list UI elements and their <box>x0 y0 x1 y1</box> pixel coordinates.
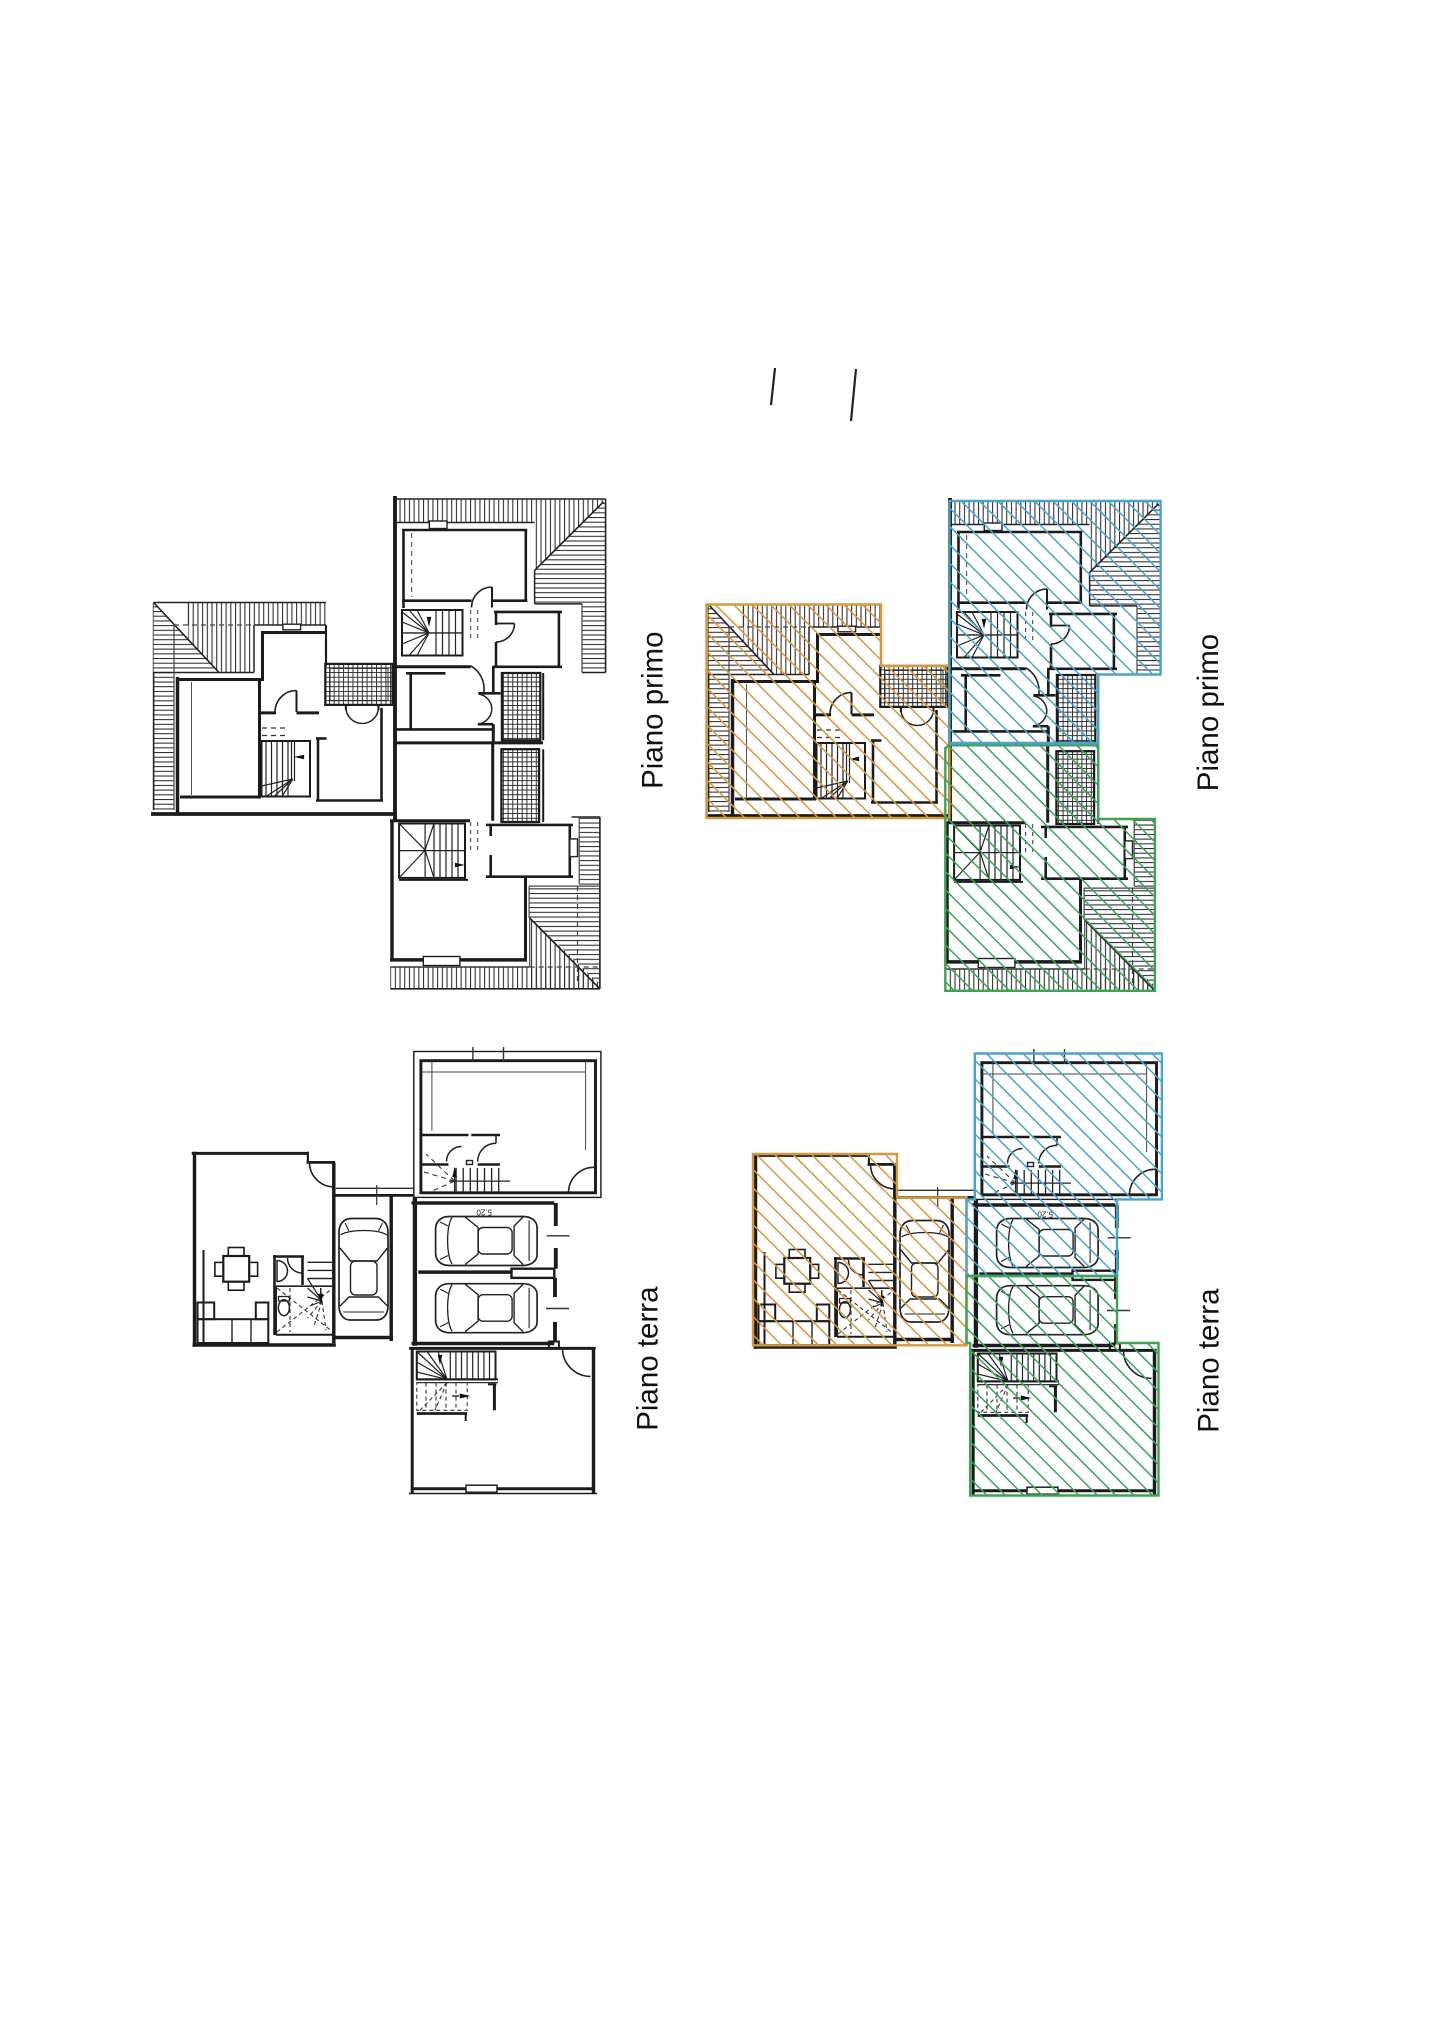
svg-text:Piano primo: Piano primo <box>637 631 670 788</box>
svg-text:Piano terra: Piano terra <box>632 1286 665 1431</box>
svg-text:Piano terra: Piano terra <box>1193 1288 1226 1433</box>
svg-text:5.20: 5.20 <box>476 1208 492 1217</box>
svg-text:Piano primo: Piano primo <box>1192 634 1225 791</box>
